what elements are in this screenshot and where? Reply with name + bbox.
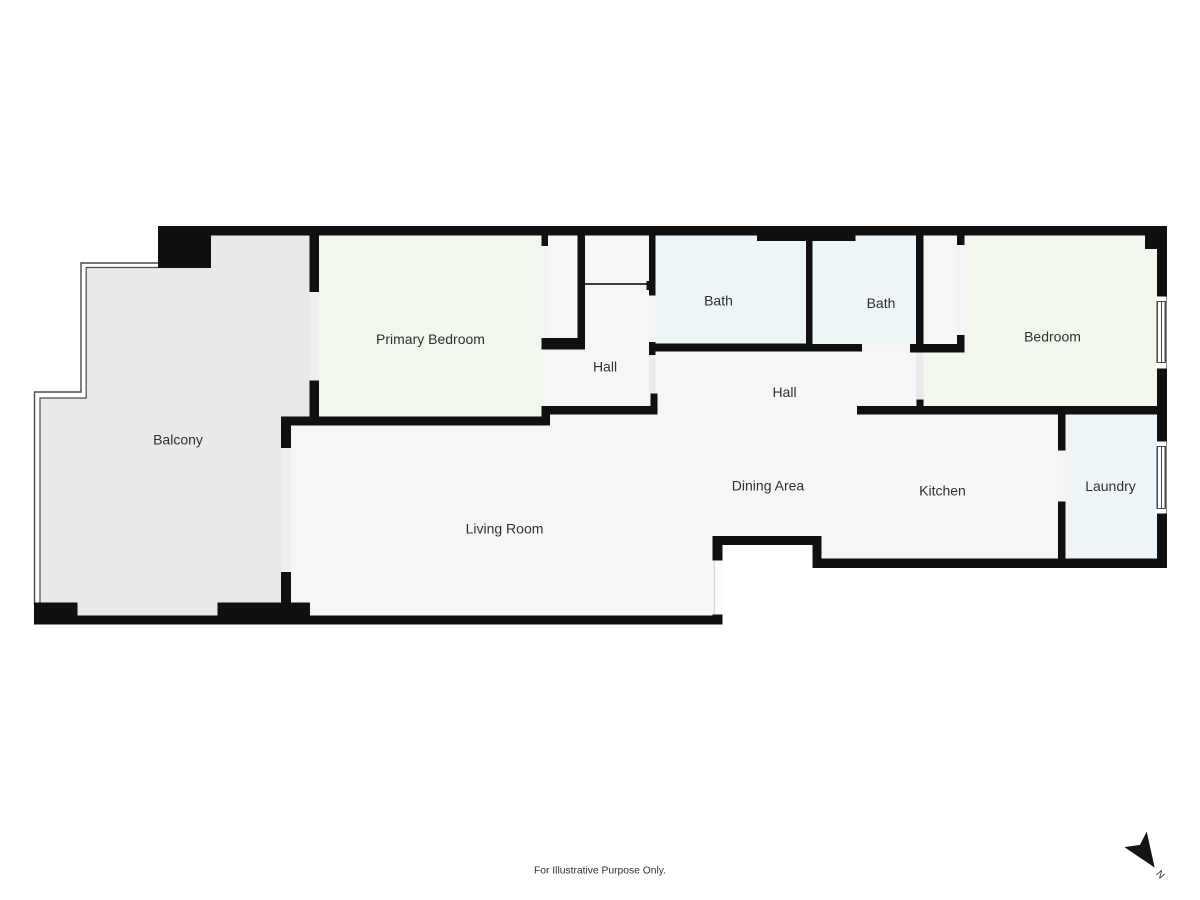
svg-text:Living Room: Living Room (466, 521, 544, 537)
svg-text:Hall: Hall (593, 359, 617, 375)
svg-text:Laundry: Laundry (1085, 478, 1136, 494)
svg-text:Dining Area: Dining Area (732, 478, 805, 494)
svg-text:Primary Bedroom: Primary Bedroom (376, 331, 485, 347)
svg-text:For Illustrative Purpose Only.: For Illustrative Purpose Only. (534, 866, 666, 877)
svg-text:Kitchen: Kitchen (919, 483, 966, 499)
svg-text:Balcony: Balcony (153, 432, 203, 448)
svg-text:Bedroom: Bedroom (1024, 329, 1081, 345)
svg-text:Hall: Hall (772, 384, 796, 400)
svg-text:Bath: Bath (867, 295, 896, 311)
svg-text:Bath: Bath (704, 293, 733, 309)
